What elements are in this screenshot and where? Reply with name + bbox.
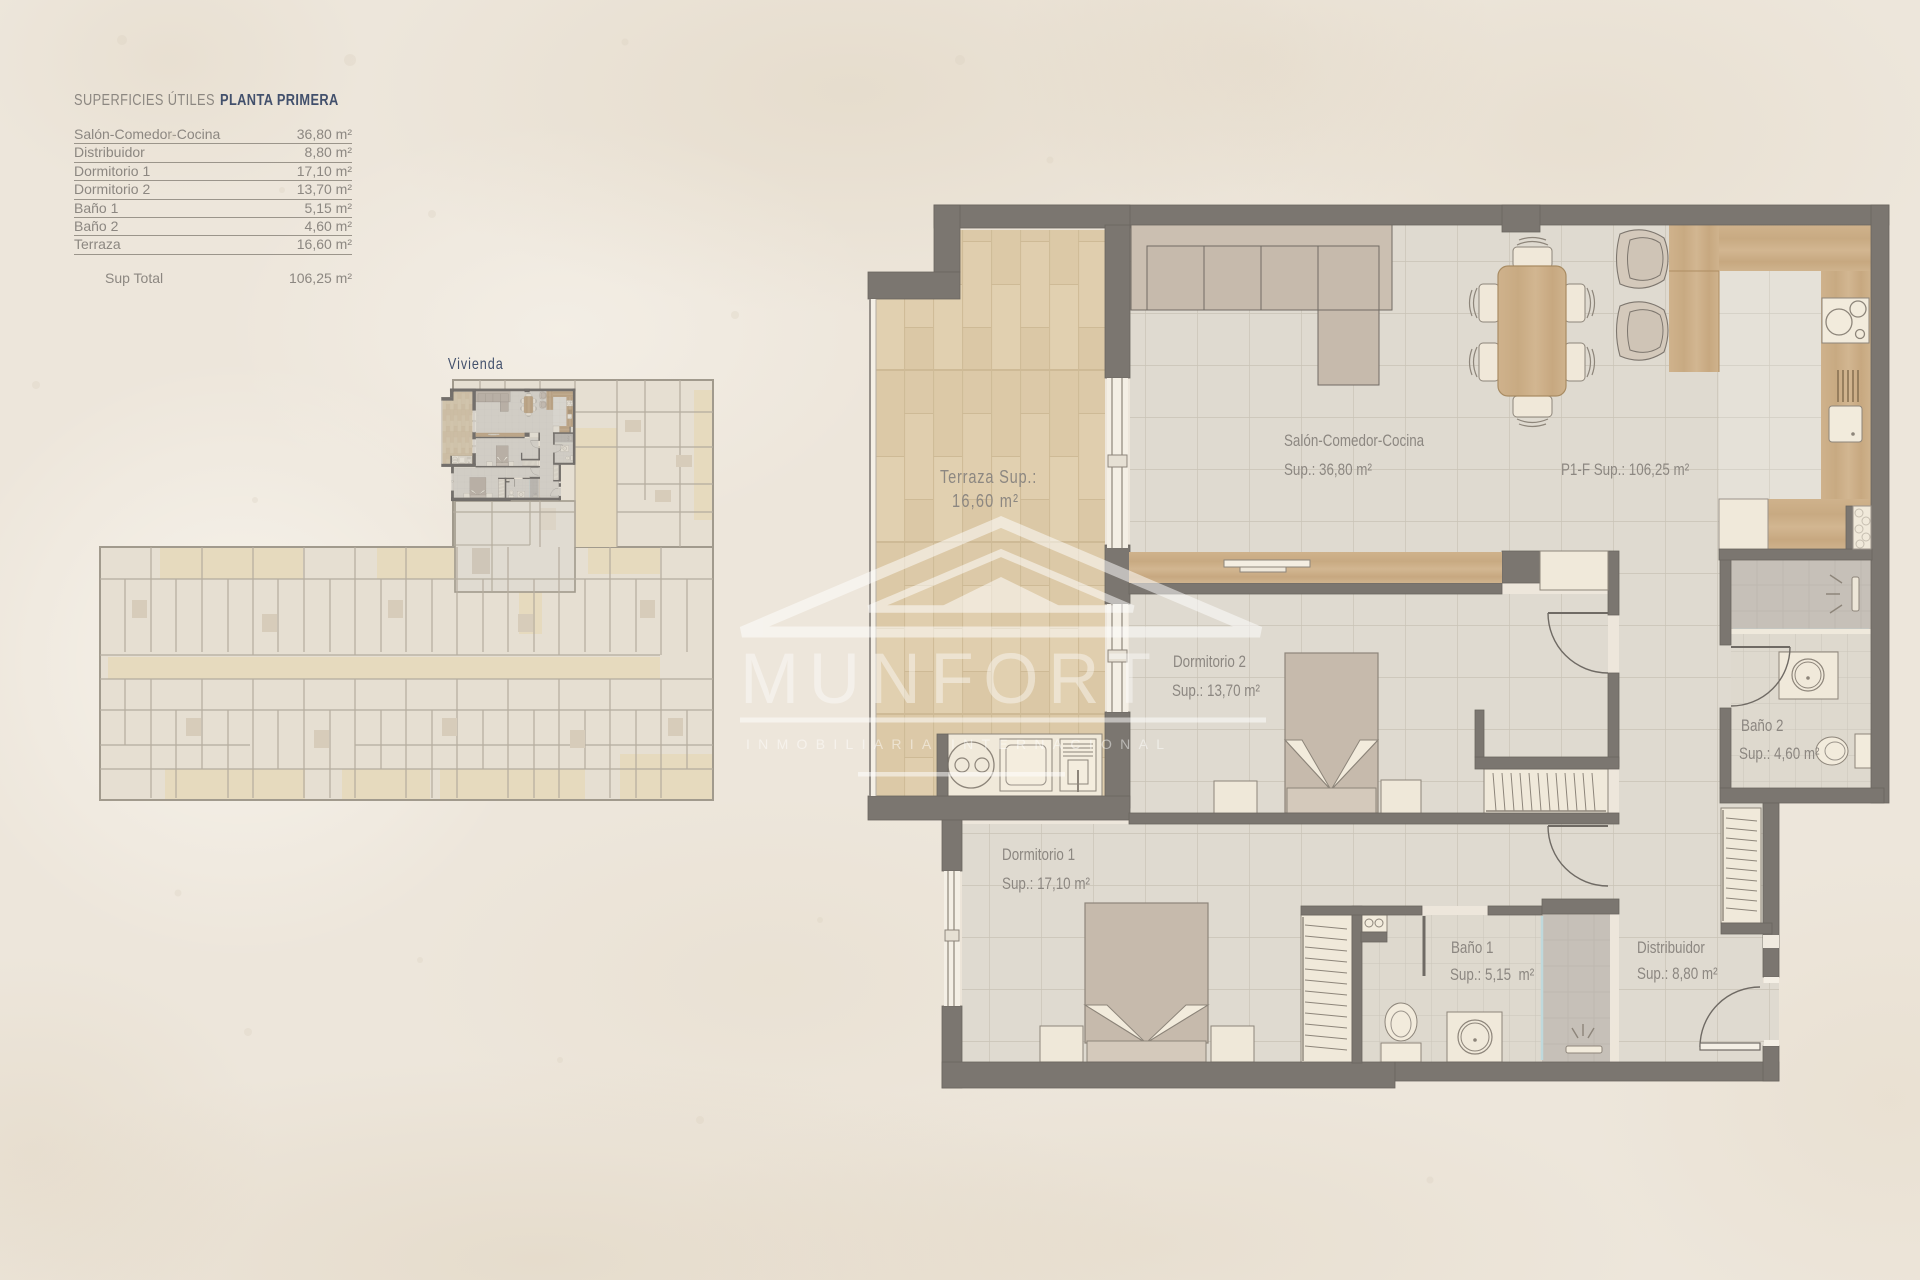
svg-text:MUNFORT: MUNFORT [740, 640, 1163, 719]
svg-text:Sup.: 4,60 m²: Sup.: 4,60 m² [1739, 745, 1820, 764]
svg-text:P1-F Sup.: 106,25 m²: P1-F Sup.: 106,25 m² [1561, 461, 1689, 480]
svg-text:Terraza Sup.:: Terraza Sup.: [940, 466, 1037, 487]
svg-text:Sup.: 17,10 m²: Sup.: 17,10 m² [1002, 875, 1090, 894]
svg-text:Dormitorio 2: Dormitorio 2 [1173, 653, 1246, 672]
svg-text:16,60 m²: 16,60 m² [952, 490, 1019, 511]
svg-text:INMOBILIARIA INTERNACIONAL: INMOBILIARIA INTERNACIONAL [746, 736, 1173, 752]
svg-text:Sup.: 5,15 m²: Sup.: 5,15 m² [1450, 966, 1534, 985]
svg-text:Sup.: 36,80 m²: Sup.: 36,80 m² [1284, 461, 1372, 480]
svg-text:Distribuidor: Distribuidor [1637, 939, 1705, 958]
svg-text:Sup.: 8,80 m²: Sup.: 8,80 m² [1637, 965, 1718, 984]
svg-text:Vivienda: Vivienda [448, 356, 504, 374]
svg-text:Dormitorio 1: Dormitorio 1 [1002, 846, 1075, 865]
svg-text:Baño 2: Baño 2 [1741, 717, 1784, 736]
svg-text:Salón-Comedor-Cocina: Salón-Comedor-Cocina [1284, 432, 1425, 451]
svg-text:Sup.: 13,70 m²: Sup.: 13,70 m² [1172, 682, 1260, 701]
svg-text:Baño 1: Baño 1 [1451, 939, 1494, 958]
